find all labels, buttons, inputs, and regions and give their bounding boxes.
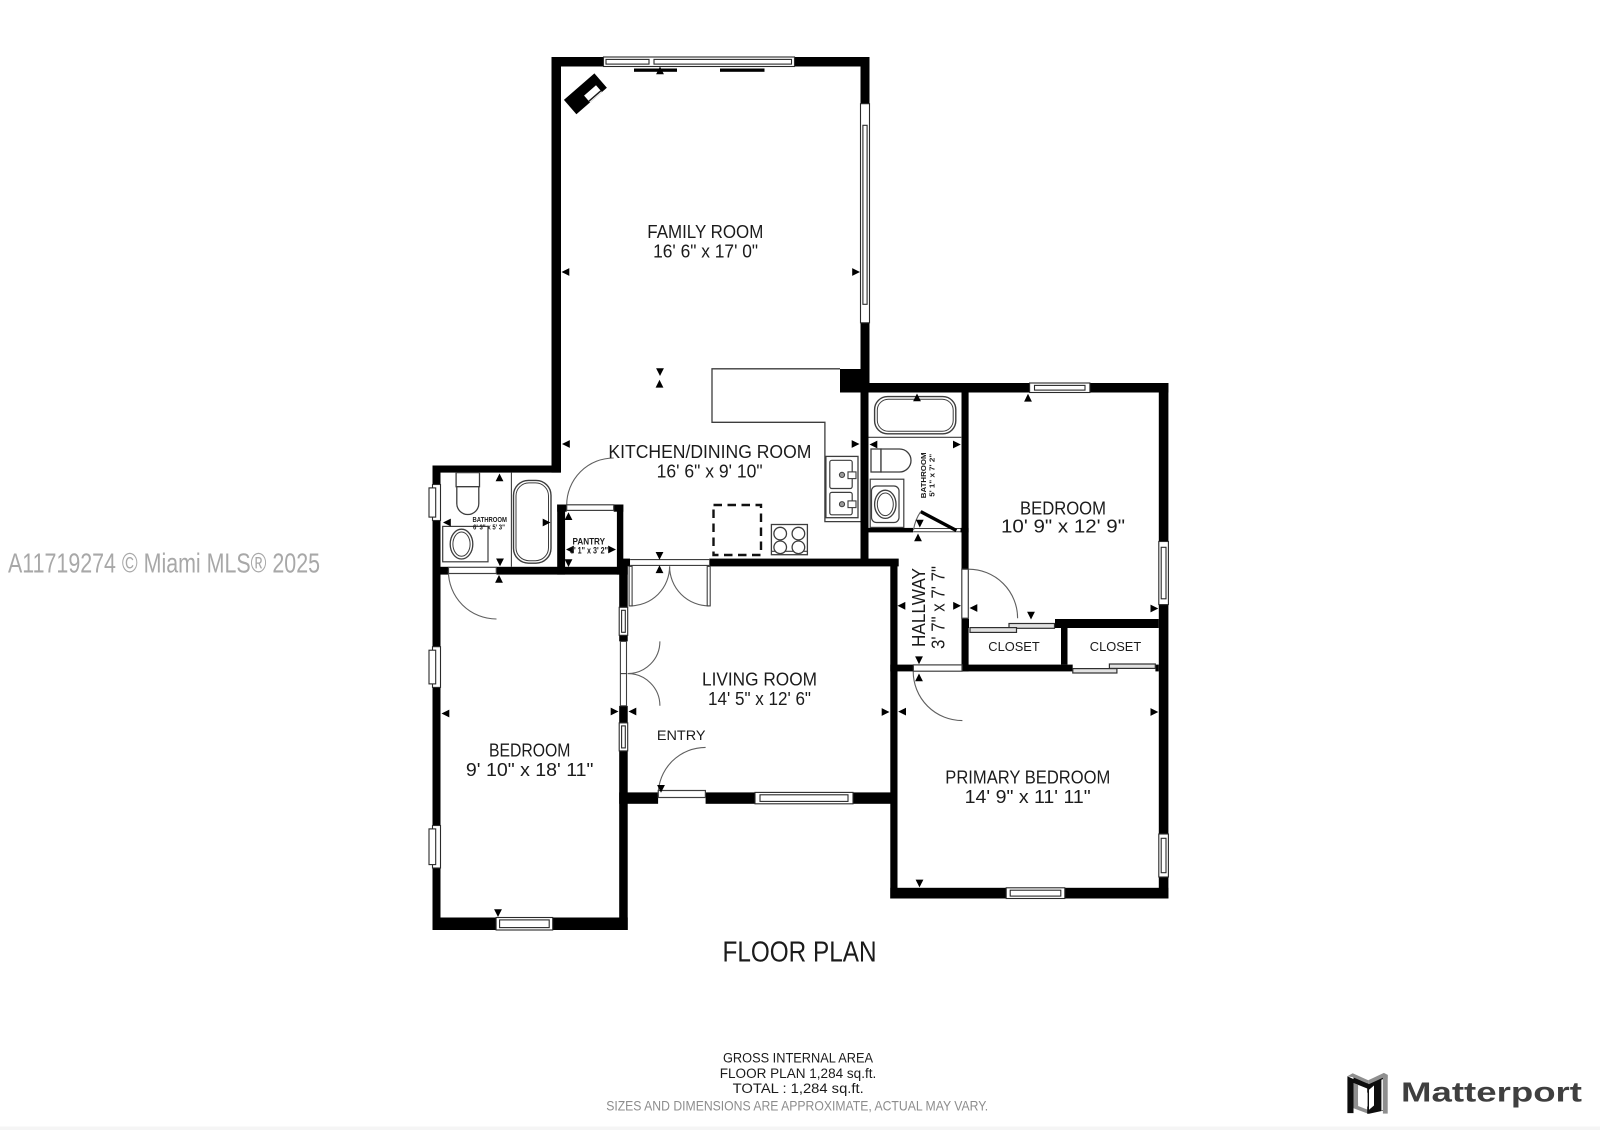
svg-text:5' 1" x 7' 2": 5' 1" x 7' 2" [927, 454, 936, 497]
svg-text:14' 5" x 12' 6": 14' 5" x 12' 6" [708, 689, 811, 709]
svg-text:BATHROOM: BATHROOM [473, 517, 508, 524]
svg-text:10' 9" x 12' 9": 10' 9" x 12' 9" [1001, 517, 1125, 537]
svg-text:14' 9" x 11' 11": 14' 9" x 11' 11" [965, 787, 1091, 807]
svg-text:16' 6" x 9' 10": 16' 6" x 9' 10" [657, 462, 763, 482]
svg-text:3' 1" x 3' 2": 3' 1" x 3' 2" [570, 546, 608, 557]
svg-text:ENTRY: ENTRY [657, 727, 706, 743]
svg-text:TOTAL : 1,284 sq.ft.: TOTAL : 1,284 sq.ft. [733, 1081, 864, 1096]
svg-text:A11719274 © Miami MLS® 2025: A11719274 © Miami MLS® 2025 [8, 548, 320, 579]
svg-text:HALLWAY: HALLWAY [909, 568, 929, 647]
svg-text:CLOSET: CLOSET [1090, 640, 1142, 654]
svg-text:CLOSET: CLOSET [988, 640, 1040, 654]
svg-text:6' 3" x 5' 3": 6' 3" x 5' 3" [473, 525, 505, 532]
svg-text:KITCHEN/DINING ROOM: KITCHEN/DINING ROOM [608, 442, 811, 462]
svg-text:9' 10" x 18' 11": 9' 10" x 18' 11" [466, 760, 594, 780]
svg-text:BEDROOM: BEDROOM [489, 741, 571, 761]
svg-text:PRIMARY BEDROOM: PRIMARY BEDROOM [945, 767, 1110, 787]
svg-text:3' 7" x 7' 7": 3' 7" x 7' 7" [929, 566, 949, 649]
svg-text:LIVING ROOM: LIVING ROOM [702, 669, 817, 689]
svg-text:FLOOR PLAN 1,284 sq.ft.: FLOOR PLAN 1,284 sq.ft. [720, 1066, 877, 1081]
svg-text:SIZES AND DIMENSIONS ARE APPRO: SIZES AND DIMENSIONS ARE APPROXIMATE, AC… [606, 1098, 988, 1113]
svg-text:FAMILY ROOM: FAMILY ROOM [647, 222, 763, 242]
svg-text:FLOOR PLAN: FLOOR PLAN [723, 936, 877, 968]
svg-text:16' 6" x 17' 0": 16' 6" x 17' 0" [653, 242, 758, 262]
svg-text:GROSS INTERNAL AREA: GROSS INTERNAL AREA [723, 1051, 873, 1066]
svg-text:BEDROOM: BEDROOM [1020, 498, 1106, 518]
svg-text:Matterport: Matterport [1401, 1077, 1582, 1108]
